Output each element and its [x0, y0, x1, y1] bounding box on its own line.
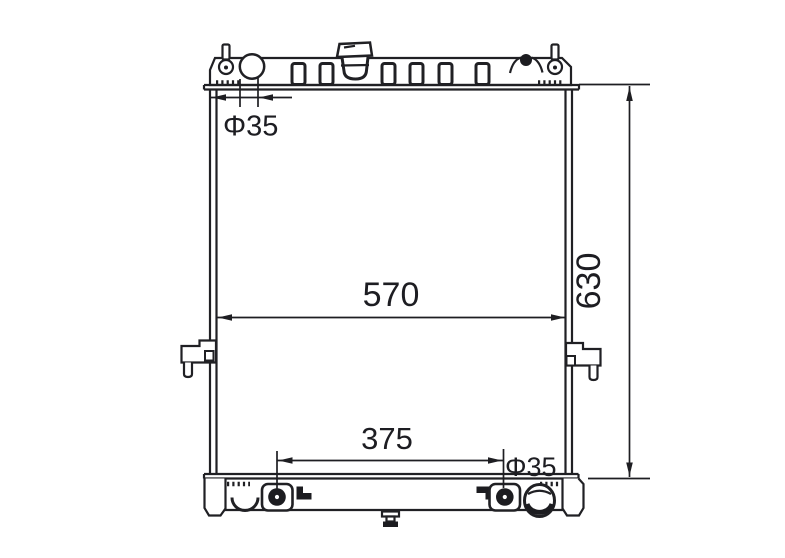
outlet-pipe-opening [525, 485, 555, 517]
clip-slot [382, 64, 395, 85]
clip-slot [320, 64, 333, 85]
dimensions: Φ35 570 630 [211, 78, 650, 490]
drain-plug [382, 512, 399, 528]
filler-cap [337, 43, 372, 58]
overall-height-label: 630 [570, 253, 608, 310]
clip-slot [410, 64, 423, 85]
dimension-outlet-diameter: Φ35 [505, 452, 557, 482]
clip-slot [476, 64, 489, 85]
dim-arrowhead [212, 94, 226, 101]
left-mounting-pin [262, 484, 312, 511]
dim-arrowhead [259, 94, 273, 101]
core-width-label: 570 [363, 276, 420, 314]
outlet-diameter-label: Φ35 [505, 452, 557, 482]
dimension-inlet-diameter: Φ35 [211, 78, 292, 143]
radiator-technical-drawing: Φ35 570 630 [0, 0, 785, 558]
inlet-pipe-opening [240, 54, 264, 78]
inlet-diameter-label: Φ35 [223, 111, 278, 143]
clip-slot [439, 64, 452, 85]
clip-slot [292, 64, 305, 85]
left-pin-notch [297, 487, 312, 500]
pin-spacing-label: 375 [361, 421, 413, 456]
dim-arrowhead [626, 463, 633, 477]
right-bracket-tab [590, 366, 598, 381]
right-bracket-hole [567, 356, 576, 366]
bottom-left-foot [205, 479, 226, 516]
left-bracket-tab [184, 363, 192, 378]
top-tank [204, 43, 579, 90]
dimension-overall-height: 630 [570, 85, 650, 479]
bottom-right-foot [563, 479, 584, 516]
left-bracket-hole [205, 351, 214, 361]
radiator-drawing-page: Φ35 570 630 [0, 0, 785, 558]
dimension-pin-spacing: 375 [277, 421, 504, 490]
dim-arrowhead [218, 314, 232, 321]
bottom-arc-cutout [232, 498, 258, 511]
dim-arrowhead [551, 314, 565, 321]
right-mounting-pin [477, 484, 521, 511]
dim-arrowhead [488, 457, 502, 464]
dim-arrowhead [626, 87, 633, 101]
dimension-core-width: 570 [217, 276, 566, 321]
dim-arrowhead [279, 457, 293, 464]
